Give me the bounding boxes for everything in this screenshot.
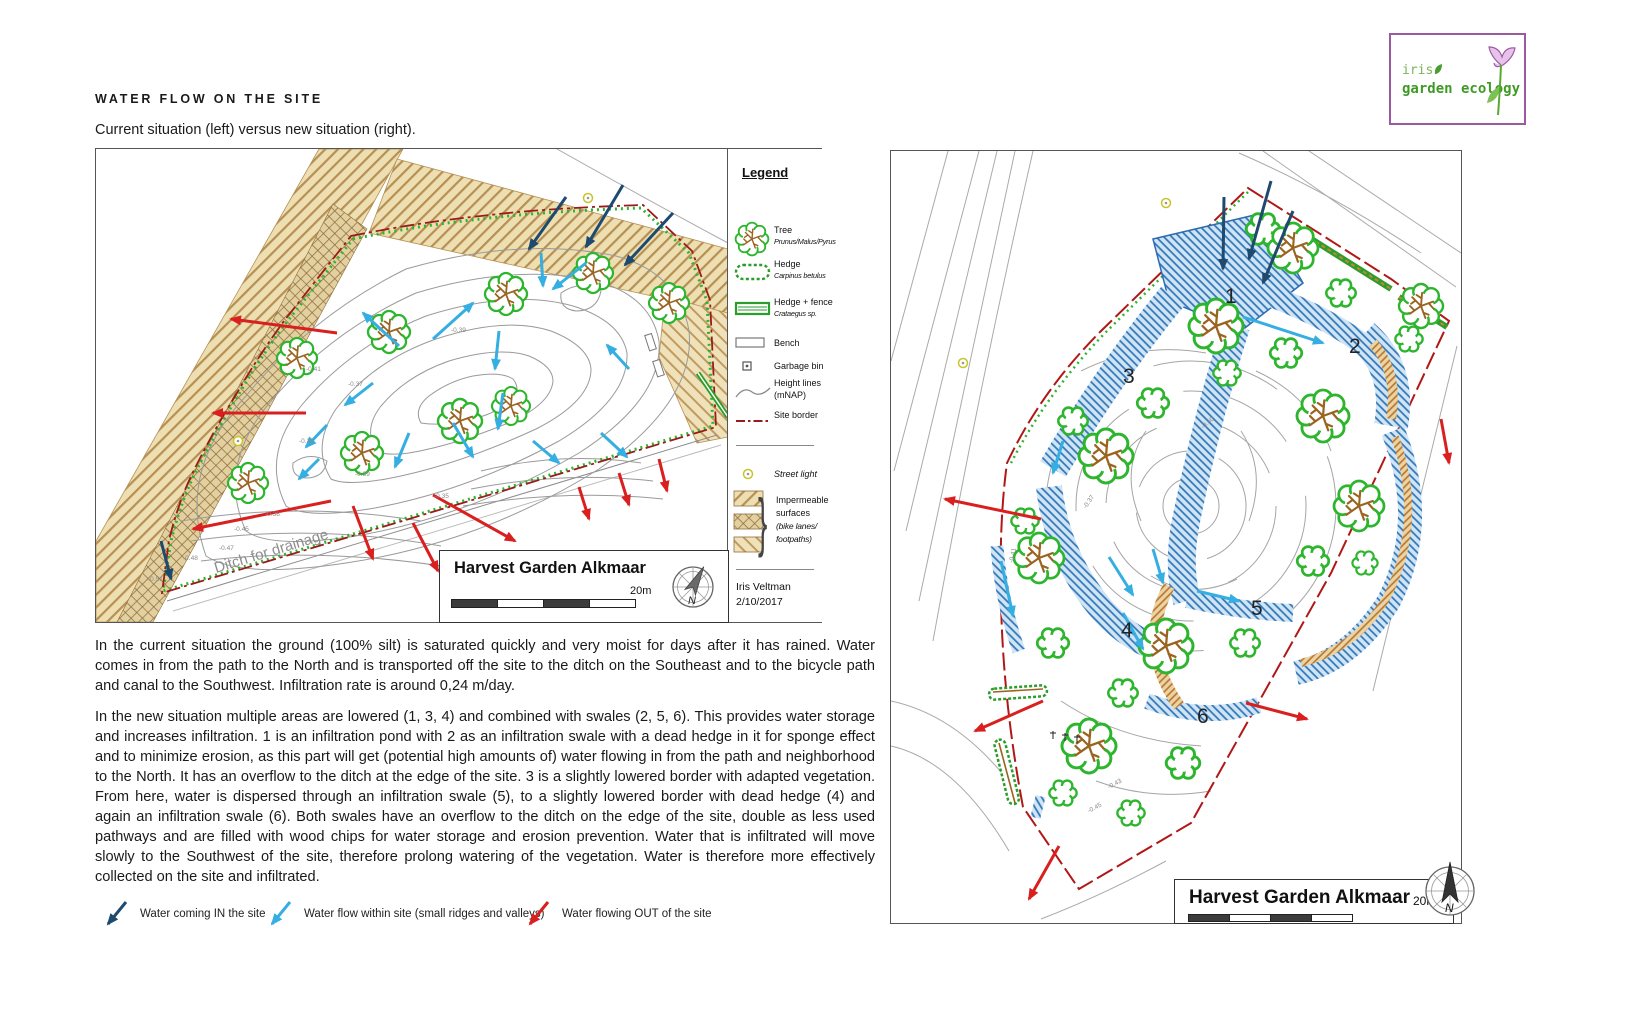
inflow-arrow-icon: [98, 898, 132, 932]
svg-text:-0.36: -0.36: [299, 438, 314, 445]
street-light-icon: [584, 194, 593, 203]
compass-icon: N: [1417, 854, 1483, 922]
area-number-2: 2: [1349, 335, 1361, 358]
legend-divider: [736, 445, 814, 446]
svg-text:-0.35: -0.35: [434, 493, 449, 500]
right-scale-bar: [1189, 914, 1353, 922]
legend-impermeable-4: footpaths): [776, 534, 812, 544]
bench-icon: [734, 335, 772, 351]
height-lines-icon: [734, 381, 772, 403]
right-map-title-block: Harvest Garden Alkmaar 20m N: [1174, 879, 1454, 924]
logo-name: iris: [1402, 63, 1443, 78]
credit-name: Iris Veltman: [736, 581, 791, 593]
street-light-icon: [738, 465, 758, 483]
left-figure: -0.41 -0.37 -0.39 -0.39 -0.35 -0.36 -0.3…: [95, 148, 822, 623]
hedge-icon: [734, 261, 772, 283]
legend-panel: Legend Tree Prunus/Malus/Pyrus Hedge Car…: [727, 149, 822, 622]
svg-text:-0.47: -0.47: [219, 545, 234, 552]
legend-height-label2: (mNAP): [774, 390, 806, 400]
compass-n-label: N: [688, 595, 696, 607]
svg-text:-0.37: -0.37: [348, 381, 363, 388]
right-map-title: Harvest Garden Alkmaar: [1189, 887, 1410, 909]
svg-text:-0.38: -0.38: [265, 511, 280, 518]
legend-tree-label: Tree: [774, 225, 792, 235]
area-number-1: 1: [1225, 285, 1237, 308]
legend-impermeable-1: Impermeable: [776, 495, 829, 505]
area-number-6: 6: [1197, 705, 1209, 728]
legend-divider: [736, 569, 814, 570]
area-number-4: 4: [1121, 619, 1133, 642]
legend-bench-label: Bench: [774, 338, 800, 348]
svg-text:-0.41: -0.41: [306, 366, 321, 373]
svg-text:-0.45: -0.45: [1087, 801, 1104, 814]
brace: }: [758, 485, 767, 560]
infiltration-swale-5: [1187, 599, 1293, 613]
compass-n-label: N: [1445, 901, 1454, 915]
paragraph-current-situation: In the current situation the ground (100…: [95, 636, 875, 696]
logo: iris garden ecology: [1389, 33, 1526, 125]
street-light-icon: [959, 359, 968, 368]
svg-text:-0.39: -0.39: [355, 471, 370, 478]
legend-border-label: Site border: [774, 410, 818, 420]
legend-hedge-label: Hedge: [774, 259, 801, 269]
svg-text:-0.48: -0.48: [183, 555, 198, 562]
area-number-5: 5: [1251, 597, 1263, 620]
arrow-key-in-label: Water coming IN the site: [140, 908, 265, 920]
leaf-icon: [1433, 63, 1443, 75]
body-text: In the current situation the ground (100…: [95, 636, 875, 898]
legend-garbage-label: Garbage bin: [774, 361, 824, 371]
legend-tree-species: Prunus/Malus/Pyrus: [774, 237, 836, 246]
internal-flow-arrow-icon: [262, 898, 296, 932]
left-scale-label: 20m: [630, 585, 651, 597]
site-border-icon: [734, 415, 772, 427]
svg-text:-0.39: -0.39: [451, 327, 466, 334]
left-scale-bar: [452, 599, 636, 608]
tree-icon: [732, 219, 772, 259]
garbage-bin-icon: [740, 359, 760, 373]
svg-text:-0.51: -0.51: [148, 576, 163, 583]
area-number-3: 3: [1123, 365, 1135, 388]
legend-title: Legend: [742, 165, 788, 180]
credit-date: 2/10/2017: [736, 596, 783, 608]
paragraph-new-situation: In the new situation multiple areas are …: [95, 707, 875, 887]
legend-hedge-species: Carpinus betulus: [774, 271, 826, 280]
legend-street-light-label: Street light: [774, 469, 817, 479]
street-light-icon: [234, 437, 243, 446]
arrow-key-within-label: Water flow within site (small ridges and…: [304, 908, 545, 920]
page-subtitle: Current situation (left) versus new situ…: [95, 122, 416, 138]
arrow-key-within: Water flow within site (small ridges and…: [262, 898, 522, 932]
left-map-title-block: Harvest Garden Alkmaar 20m N: [439, 550, 729, 623]
page-title: WATER FLOW ON THE SITE: [95, 92, 323, 106]
page: WATER FLOW ON THE SITE Current situation…: [0, 0, 1644, 1036]
svg-text:-0.37: -0.37: [1082, 494, 1096, 510]
right-map-canvas: 1 2 3 4 5 6 -0.37 -0.41 -0.50 -0.43 -0.4…: [891, 151, 1461, 923]
legend-impermeable-3: (bike lanes/: [776, 521, 817, 531]
street-light-icon: [1162, 199, 1171, 208]
right-figure: 1 2 3 4 5 6 -0.37 -0.41 -0.50 -0.43 -0.4…: [890, 150, 1462, 924]
svg-text:-0.45: -0.45: [234, 526, 249, 533]
legend-hedge-fence-label: Hedge + fence: [774, 297, 833, 307]
legend-height-label: Height lines: [774, 378, 821, 388]
hedge-fence-icon: [734, 299, 772, 319]
legend-hedge-fence-species: Crataegus sp.: [774, 309, 817, 318]
legend-impermeable-2: surfaces: [776, 508, 810, 518]
left-map-title: Harvest Garden Alkmaar: [454, 559, 646, 578]
compass-icon: N: [665, 559, 721, 615]
outflow-arrow-icon: [520, 898, 554, 932]
arrow-key-out: Water flowing OUT of the site: [520, 898, 760, 932]
arrow-key-out-label: Water flowing OUT of the site: [562, 908, 712, 920]
iris-flower-icon: [1483, 39, 1519, 119]
